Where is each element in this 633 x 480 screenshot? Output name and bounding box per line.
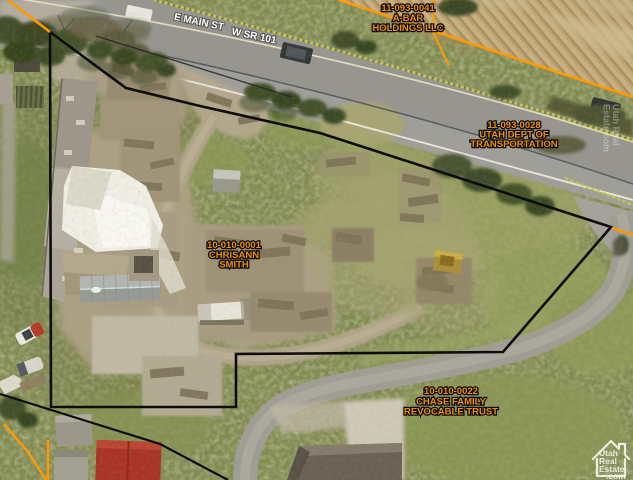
- svg-text:REVOCABLE TRUST: REVOCABLE TRUST: [404, 407, 498, 418]
- svg-text:HOLDINGS LLC: HOLDINGS LLC: [372, 23, 443, 34]
- svg-text:TRANSPORTATION: TRANSPORTATION: [470, 139, 557, 150]
- svg-text:Utah Real: Utah Real: [611, 104, 621, 146]
- svg-text:10-010-0022: 10-010-0022: [424, 386, 478, 397]
- svg-text:SMITH: SMITH: [219, 260, 249, 271]
- svg-text:Estate.com: Estate.com: [602, 104, 612, 152]
- svg-text:.com: .com: [606, 471, 626, 480]
